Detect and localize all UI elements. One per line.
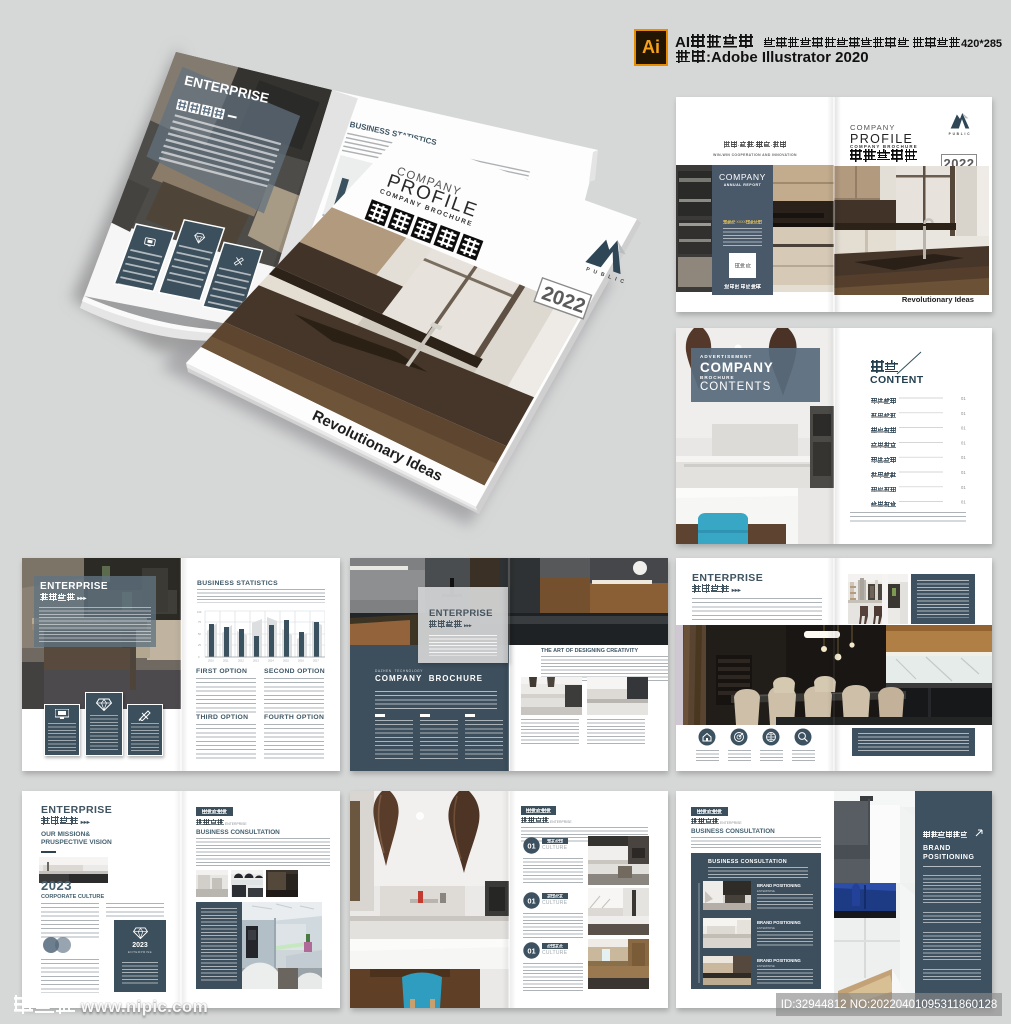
svg-text:2017: 2017 [313,659,319,663]
svg-text:01: 01 [961,455,966,460]
svg-text:50: 50 [198,632,201,636]
svg-text:0: 0 [198,655,200,659]
svg-text:01: 01 [527,897,535,906]
svg-text:01: 01 [527,947,535,956]
svg-text:01: 01 [961,426,966,431]
svg-text:01: 01 [961,500,966,505]
svg-text:2013: 2013 [253,659,259,663]
svg-text:2012: 2012 [238,659,244,663]
svg-text:25: 25 [198,643,201,647]
svg-text:2010: 2010 [208,659,214,663]
svg-text:75: 75 [198,620,201,624]
svg-text:2016: 2016 [298,659,304,663]
svg-text:01: 01 [961,411,966,416]
svg-text:2014: 2014 [268,659,274,663]
svg-text:2011: 2011 [223,659,229,663]
svg-text:01: 01 [527,842,535,851]
svg-text:01: 01 [961,440,966,445]
svg-text:01: 01 [961,396,966,401]
svg-text:100: 100 [197,610,202,614]
svg-text:01: 01 [961,470,966,475]
svg-text:2015: 2015 [283,659,289,663]
svg-text:01: 01 [961,485,966,490]
